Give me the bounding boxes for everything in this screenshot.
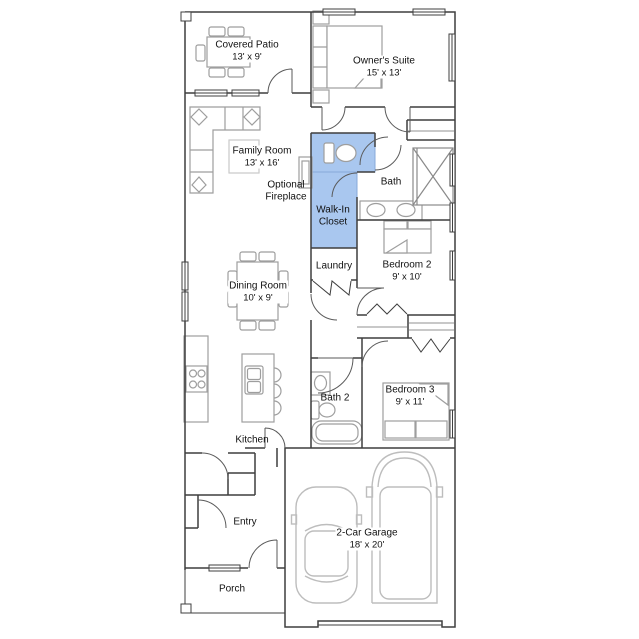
- room-name: Bath 2: [321, 392, 350, 403]
- room-name: Entry: [233, 516, 256, 527]
- bedroom-3-door: [362, 341, 388, 367]
- room-label-walk-in-closet: Walk-In Closet: [308, 205, 358, 228]
- cooktop: [186, 366, 207, 392]
- room-name: Porch: [219, 583, 245, 594]
- furniture: [184, 11, 453, 603]
- room-name: Family Room: [233, 146, 292, 157]
- kitchen-island: [242, 354, 281, 422]
- room-label-owners-suite: Owner's Suite 15' x 13': [352, 56, 416, 79]
- bedroom-3-closet-door: [412, 339, 450, 352]
- porch-post: [181, 604, 191, 613]
- owners-suite-door: [322, 107, 345, 130]
- room-name: Walk-In Closet: [316, 205, 350, 228]
- room-dims: 10' x 9': [229, 292, 287, 304]
- toilet-room-door: [375, 145, 401, 170]
- room-label-kitchen: Kitchen: [234, 434, 269, 446]
- patio-post: [181, 12, 191, 21]
- floor-plan-screen: Covered Patio 13' x 9' Owner's Suite 15'…: [0, 0, 639, 639]
- laundry-bifold-door: [313, 281, 351, 295]
- room-dims: 18' x 20': [336, 539, 397, 551]
- room-dims: 13' x 9': [215, 51, 278, 63]
- walls: [185, 12, 455, 627]
- bedroom-2-closet-door: [367, 304, 407, 314]
- room-label-porch: Porch: [218, 583, 246, 595]
- room-name: Dining Room: [229, 281, 287, 292]
- coat-closet-door: [198, 500, 226, 528]
- room-label-garage: 2-Car Garage 18' x 20': [335, 528, 398, 551]
- room-name: Laundry: [316, 260, 352, 271]
- hall-door: [311, 294, 337, 320]
- room-label-family-room: Family Room 13' x 16': [232, 146, 293, 169]
- room-label-laundry: Laundry: [315, 260, 353, 272]
- room-label-entry: Entry: [232, 516, 257, 528]
- annotation-optional-fireplace: Optional Fireplace: [257, 180, 315, 203]
- room-name: Bath: [381, 176, 402, 187]
- room-name: Owner's Suite: [353, 56, 415, 67]
- pantry-door: [202, 453, 228, 479]
- room-dims: 9' x 10': [383, 271, 432, 283]
- patio-door: [268, 69, 292, 93]
- room-name: Covered Patio: [215, 40, 278, 51]
- room-label-dining-room: Dining Room 10' x 9': [228, 281, 288, 304]
- front-door: [249, 540, 277, 568]
- room-name: Bedroom 3: [386, 385, 435, 396]
- room-label-bath: Bath: [380, 176, 403, 188]
- shower: [413, 148, 453, 205]
- room-name: Bedroom 2: [383, 260, 432, 271]
- room-dims: 15' x 13': [353, 67, 415, 79]
- toilet-icon: [324, 143, 356, 163]
- room-name: Kitchen: [235, 434, 268, 445]
- room-label-covered-patio: Covered Patio 13' x 9': [214, 40, 279, 63]
- room-dims: 13' x 16': [233, 157, 292, 169]
- bedroom-2-bed: [384, 221, 431, 253]
- room-name: 2-Car Garage: [336, 528, 397, 539]
- room-dims: 9' x 11': [386, 396, 435, 408]
- bath2-fixtures: [311, 372, 362, 444]
- annotation-text: Optional Fireplace: [265, 180, 306, 203]
- floor-plan-drawing: [0, 0, 639, 639]
- room-label-bath-2: Bath 2: [320, 392, 351, 404]
- room-label-bedroom-3: Bedroom 3 9' x 11': [385, 385, 436, 408]
- room-label-bedroom-2: Bedroom 2 9' x 10': [382, 260, 433, 283]
